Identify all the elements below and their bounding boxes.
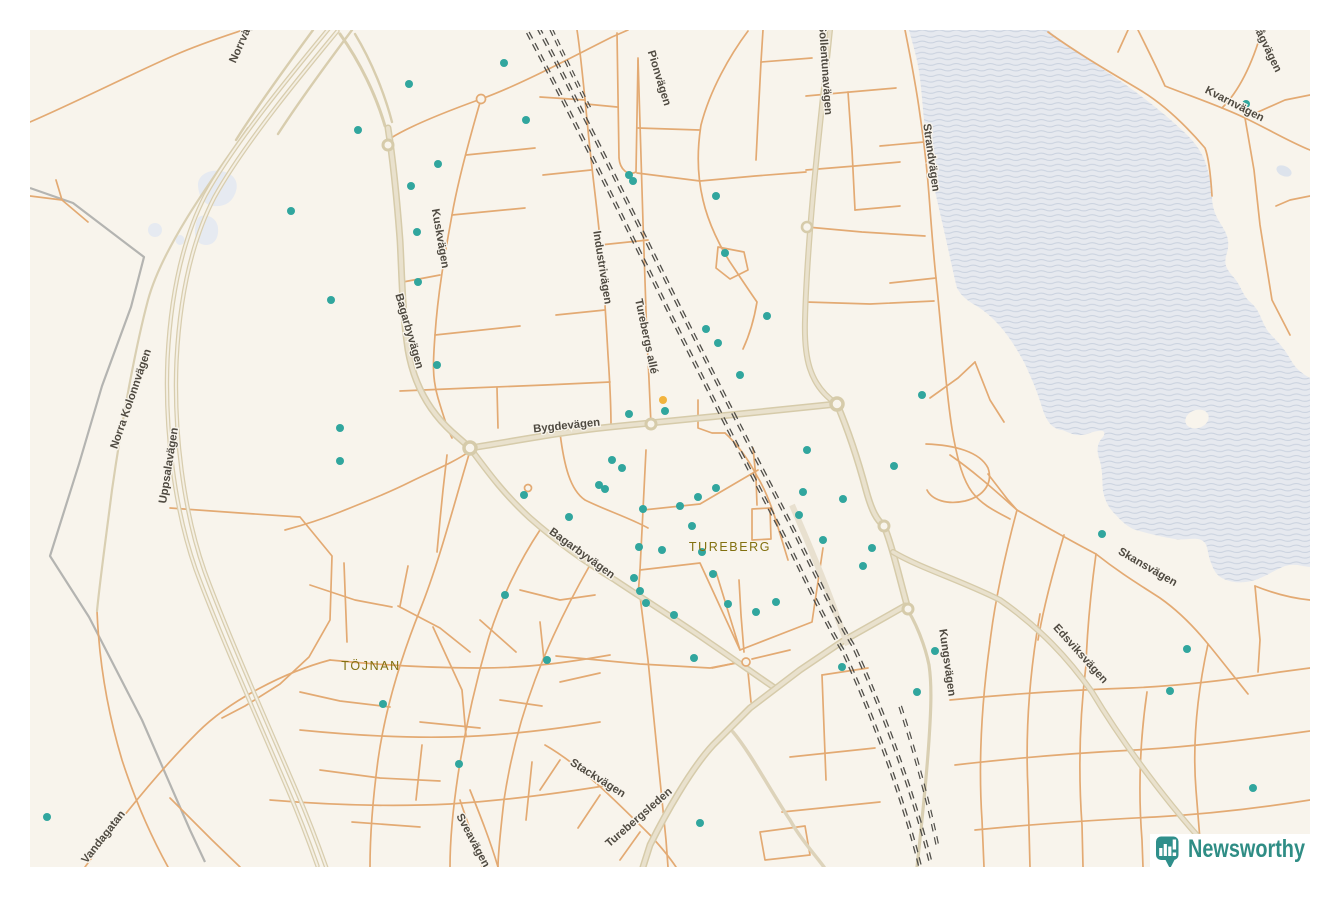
svg-text:TUREBERG: TUREBERG <box>689 540 771 554</box>
svg-text:Newsworthy: Newsworthy <box>1188 835 1305 863</box>
svg-text:TÖJNAN: TÖJNAN <box>341 659 401 673</box>
